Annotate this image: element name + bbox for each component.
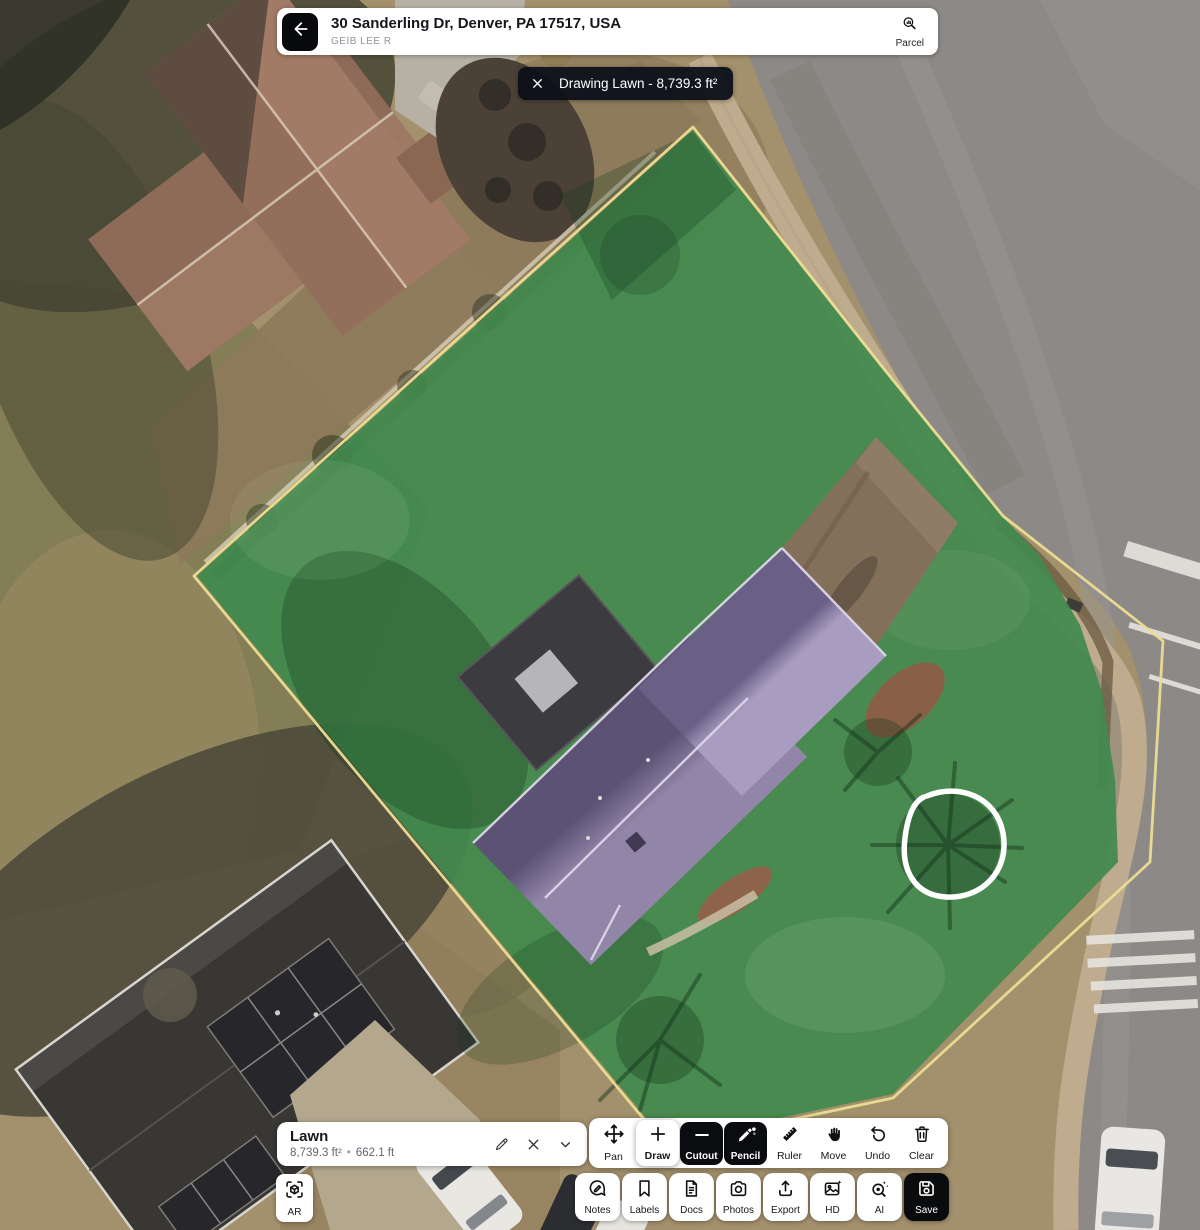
pencil-icon bbox=[735, 1125, 757, 1150]
notes-button[interactable]: Notes bbox=[575, 1173, 620, 1221]
bottom-dock: Notes Labels Docs Photos Export HD AI bbox=[575, 1173, 949, 1221]
close-icon[interactable] bbox=[530, 76, 545, 91]
tool-draw[interactable]: Draw bbox=[636, 1120, 679, 1166]
docs-button[interactable]: Docs bbox=[669, 1173, 714, 1221]
tool-undo[interactable]: Undo bbox=[856, 1120, 899, 1166]
arrow-left-icon bbox=[290, 19, 310, 44]
magnifier-sparkle-icon bbox=[869, 1178, 890, 1204]
collapse-chevron-icon[interactable] bbox=[557, 1136, 574, 1153]
photos-button[interactable]: Photos bbox=[716, 1173, 761, 1221]
floppy-icon bbox=[916, 1178, 937, 1204]
drawing-banner: Drawing Lawn - 8,739.3 ft² bbox=[518, 67, 733, 100]
perimeter-value: 662.1 ft bbox=[356, 1147, 394, 1159]
tool-cutout[interactable]: Cutout bbox=[680, 1122, 723, 1165]
lawn-measurement-app: 30 Sanderling Dr, Denver, PA 17517, USA … bbox=[0, 0, 1200, 1230]
edit-pencil-icon[interactable] bbox=[493, 1136, 510, 1153]
address-header: 30 Sanderling Dr, Denver, PA 17517, USA … bbox=[277, 8, 938, 55]
measurement-panel: Lawn 8,739.3 ft²•662.1 ft bbox=[277, 1122, 587, 1166]
camera-icon bbox=[728, 1178, 749, 1204]
ar-button[interactable]: AR bbox=[276, 1174, 313, 1222]
map-canvas[interactable] bbox=[0, 0, 1200, 1230]
ruler-icon bbox=[780, 1124, 800, 1149]
tool-pencil[interactable]: Pencil bbox=[724, 1122, 767, 1165]
measurement-values: 8,739.3 ft²•662.1 ft bbox=[290, 1147, 394, 1159]
back-button[interactable] bbox=[282, 13, 318, 51]
tool-clear[interactable]: Clear bbox=[900, 1120, 943, 1166]
measurement-title: Lawn bbox=[290, 1129, 394, 1146]
delete-x-icon[interactable] bbox=[525, 1136, 542, 1153]
image-sparkle-icon bbox=[822, 1178, 843, 1204]
ar-scan-icon bbox=[284, 1179, 305, 1205]
bookmark-icon bbox=[634, 1178, 655, 1204]
ai-button[interactable]: AI bbox=[857, 1173, 902, 1221]
upload-icon bbox=[775, 1178, 796, 1204]
labels-button[interactable]: Labels bbox=[622, 1173, 667, 1221]
chat-pencil-icon bbox=[587, 1178, 608, 1204]
owner-name: GEIB LEE R bbox=[331, 36, 621, 47]
save-button[interactable]: Save bbox=[904, 1173, 949, 1221]
parcel-search-icon bbox=[901, 15, 918, 37]
export-button[interactable]: Export bbox=[763, 1173, 808, 1221]
hd-button[interactable]: HD bbox=[810, 1173, 855, 1221]
hand-icon bbox=[824, 1124, 844, 1149]
tool-pan[interactable]: Pan bbox=[592, 1120, 635, 1166]
undo-icon bbox=[868, 1124, 888, 1149]
pan-arrows-icon bbox=[603, 1123, 625, 1150]
minus-icon bbox=[692, 1125, 712, 1150]
drawing-toolbar: Pan Draw Cutout Pencil Ruler Move bbox=[589, 1118, 948, 1168]
tool-move[interactable]: Move bbox=[812, 1120, 855, 1166]
parcel-button[interactable]: Parcel bbox=[892, 13, 928, 51]
ar-button-label: AR bbox=[288, 1207, 302, 1218]
document-icon bbox=[681, 1178, 702, 1204]
plus-icon bbox=[648, 1124, 668, 1149]
area-value: 8,739.3 ft² bbox=[290, 1147, 342, 1159]
address-title: 30 Sanderling Dr, Denver, PA 17517, USA bbox=[331, 16, 621, 33]
tool-ruler[interactable]: Ruler bbox=[768, 1120, 811, 1166]
trash-icon bbox=[912, 1124, 932, 1149]
drawing-banner-label: Drawing Lawn - 8,739.3 ft² bbox=[559, 76, 717, 91]
parcel-button-label: Parcel bbox=[896, 38, 924, 49]
